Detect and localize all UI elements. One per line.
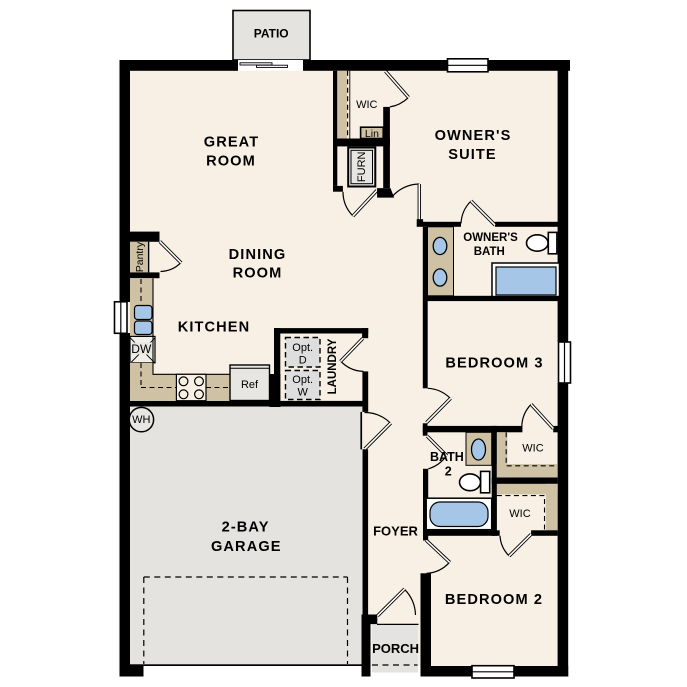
svg-text:Lin: Lin bbox=[365, 128, 379, 140]
svg-text:SUITE: SUITE bbox=[448, 147, 496, 163]
svg-text:Opt.: Opt. bbox=[292, 374, 313, 386]
svg-text:ROOM: ROOM bbox=[206, 154, 256, 170]
svg-text:Ref: Ref bbox=[241, 379, 259, 391]
svg-text:ROOM: ROOM bbox=[233, 266, 283, 282]
svg-text:2: 2 bbox=[445, 465, 452, 479]
svg-text:WIC: WIC bbox=[356, 99, 377, 111]
svg-text:WIC: WIC bbox=[522, 443, 543, 455]
svg-text:DW: DW bbox=[131, 342, 152, 356]
svg-text:PORCH: PORCH bbox=[372, 641, 419, 656]
svg-text:GARAGE: GARAGE bbox=[211, 539, 282, 555]
svg-text:OWNER'S: OWNER'S bbox=[463, 232, 518, 244]
svg-text:WIC: WIC bbox=[509, 508, 530, 520]
svg-text:FURN: FURN bbox=[356, 151, 368, 182]
svg-text:DINING: DINING bbox=[229, 247, 287, 263]
svg-text:Pantry: Pantry bbox=[134, 241, 146, 272]
svg-text:BEDROOM 2: BEDROOM 2 bbox=[445, 592, 543, 608]
svg-text:LAUNDRY: LAUNDRY bbox=[327, 338, 339, 394]
svg-text:D: D bbox=[299, 355, 307, 367]
svg-text:BEDROOM 3: BEDROOM 3 bbox=[445, 356, 543, 372]
svg-text:FOYER: FOYER bbox=[373, 524, 418, 539]
svg-text:GREAT: GREAT bbox=[204, 135, 260, 151]
svg-text:BATH: BATH bbox=[474, 246, 505, 258]
svg-text:KITCHEN: KITCHEN bbox=[178, 320, 251, 336]
svg-text:PATIO: PATIO bbox=[254, 27, 289, 41]
svg-text:WH: WH bbox=[132, 414, 150, 426]
svg-text:BATH: BATH bbox=[430, 450, 464, 464]
svg-text:Opt.: Opt. bbox=[292, 342, 313, 354]
svg-text:W: W bbox=[298, 387, 309, 399]
svg-text:2-BAY: 2-BAY bbox=[222, 520, 270, 536]
svg-text:OWNER'S: OWNER'S bbox=[435, 128, 512, 144]
